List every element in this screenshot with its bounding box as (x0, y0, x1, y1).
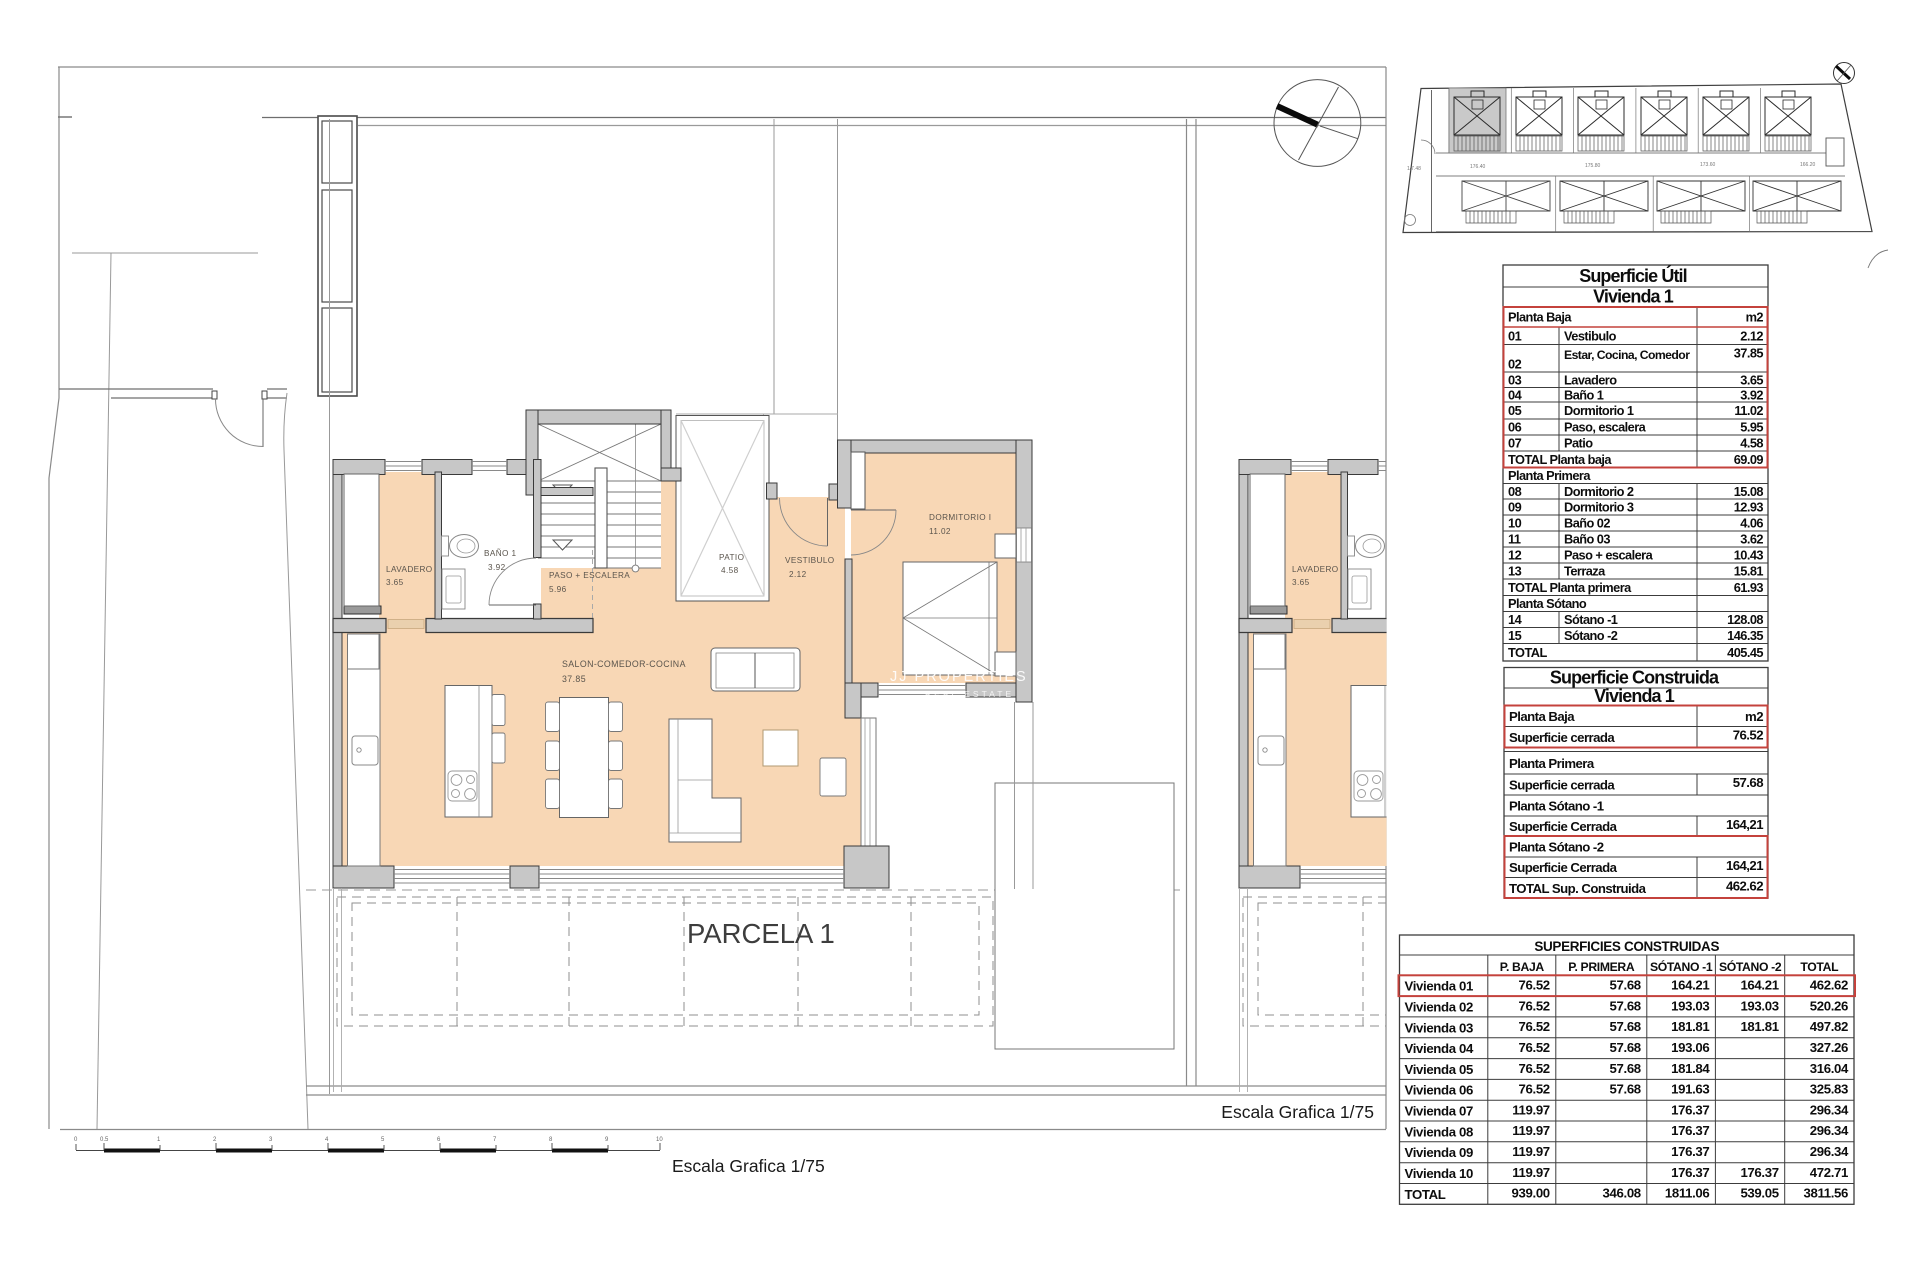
svg-text:76.52: 76.52 (1519, 1019, 1550, 1034)
svg-text:Paso + escalera: Paso + escalera (1564, 548, 1654, 563)
svg-text:04: 04 (1508, 387, 1523, 402)
svg-text:10.43: 10.43 (1734, 548, 1764, 563)
svg-text:164,21: 164,21 (1726, 817, 1763, 832)
svg-text:Dormitorio 1: Dormitorio 1 (1564, 403, 1634, 418)
svg-text:11: 11 (1508, 532, 1521, 547)
svg-text:2: 2 (213, 1137, 217, 1143)
svg-text:Vivienda 05: Vivienda 05 (1405, 1062, 1473, 1077)
svg-text:6: 6 (437, 1137, 441, 1143)
svg-text:4: 4 (325, 1137, 329, 1143)
svg-text:Vivienda 10: Vivienda 10 (1405, 1166, 1473, 1181)
svg-text:Sótano -2: Sótano -2 (1564, 628, 1618, 643)
svg-text:3811.56: 3811.56 (1804, 1186, 1849, 1201)
svg-text:1/7.48: 1/7.48 (1407, 166, 1421, 172)
svg-text:REAL ESTATE: REAL ESTATE (925, 689, 1014, 699)
svg-text:520.26: 520.26 (1810, 998, 1848, 1013)
svg-text:TOTAL: TOTAL (1405, 1187, 1446, 1202)
svg-text:76.52: 76.52 (1519, 1040, 1550, 1055)
svg-text:m2: m2 (1745, 709, 1763, 724)
svg-text:119.97: 119.97 (1512, 1165, 1550, 1180)
svg-text:939.00: 939.00 (1512, 1186, 1550, 1201)
svg-text:0: 0 (74, 1137, 78, 1143)
svg-text:10: 10 (656, 1137, 663, 1143)
svg-text:Baño 02: Baño 02 (1564, 516, 1610, 531)
svg-text:Patio: Patio (1564, 436, 1593, 451)
svg-text:3.92: 3.92 (1740, 387, 1763, 402)
svg-text:Estar, Cocina, Comedor: Estar, Cocina, Comedor (1564, 348, 1690, 362)
svg-text:176.37: 176.37 (1740, 1165, 1778, 1180)
svg-text:3: 3 (269, 1137, 273, 1143)
svg-text:Superficie cerrada: Superficie cerrada (1509, 730, 1615, 745)
svg-text:193.03: 193.03 (1740, 998, 1778, 1013)
svg-text:PARCELA 1: PARCELA 1 (687, 918, 835, 949)
svg-text:Dormitorio 2: Dormitorio 2 (1564, 484, 1634, 499)
svg-text:PASO + ESCALERA: PASO + ESCALERA (549, 571, 630, 580)
svg-text:164.21: 164.21 (1740, 978, 1778, 993)
svg-text:Vivienda 1: Vivienda 1 (1594, 686, 1675, 706)
svg-text:Escala Grafica 1/75: Escala Grafica 1/75 (672, 1156, 825, 1176)
svg-text:76.52: 76.52 (1519, 1082, 1550, 1097)
svg-text:176.37: 176.37 (1671, 1123, 1709, 1138)
svg-text:76.52: 76.52 (1519, 978, 1550, 993)
svg-text:4.06: 4.06 (1740, 516, 1763, 531)
svg-text:296.34: 296.34 (1810, 1102, 1849, 1117)
svg-text:LAVADERO: LAVADERO (386, 565, 433, 574)
svg-text:Vivienda 07: Vivienda 07 (1405, 1104, 1473, 1119)
svg-text:2.12: 2.12 (1740, 328, 1763, 343)
svg-text:181.84: 181.84 (1671, 1061, 1710, 1076)
svg-text:57.68: 57.68 (1610, 978, 1641, 993)
svg-text:TOTAL Planta primera: TOTAL Planta primera (1508, 580, 1632, 595)
svg-text:07: 07 (1508, 436, 1522, 451)
svg-text:Vivienda 01: Vivienda 01 (1405, 979, 1473, 994)
svg-text:472.71: 472.71 (1810, 1165, 1848, 1180)
svg-text:405.45: 405.45 (1727, 645, 1763, 660)
svg-text:09: 09 (1508, 500, 1522, 515)
svg-text:176.37: 176.37 (1671, 1102, 1709, 1117)
svg-text:5.96: 5.96 (549, 585, 567, 594)
svg-text:05: 05 (1508, 403, 1522, 418)
svg-text:9: 9 (605, 1137, 609, 1143)
svg-text:BAÑO 1: BAÑO 1 (484, 548, 516, 558)
svg-text:TOTAL Sup. Construida: TOTAL Sup. Construida (1509, 881, 1647, 896)
svg-text:Planta Baja: Planta Baja (1508, 310, 1572, 325)
svg-text:146.35: 146.35 (1727, 628, 1763, 643)
svg-text:76.52: 76.52 (1519, 998, 1550, 1013)
svg-text:06: 06 (1508, 420, 1522, 435)
svg-text:57.68: 57.68 (1610, 1019, 1641, 1034)
svg-text:3.92: 3.92 (488, 563, 506, 572)
svg-text:0.5: 0.5 (100, 1137, 109, 1143)
svg-text:57.68: 57.68 (1610, 1061, 1641, 1076)
svg-text:Lavadero: Lavadero (1564, 372, 1617, 387)
svg-text:TOTAL: TOTAL (1508, 645, 1547, 660)
svg-text:08: 08 (1508, 484, 1522, 499)
svg-text:11.02: 11.02 (929, 527, 951, 536)
svg-text:01: 01 (1508, 328, 1522, 343)
svg-text:164,21: 164,21 (1726, 858, 1763, 873)
svg-text:296.34: 296.34 (1810, 1123, 1849, 1138)
svg-text:37.85: 37.85 (1734, 346, 1764, 361)
svg-text:Vivienda 02: Vivienda 02 (1405, 999, 1473, 1014)
svg-text:Planta Baja: Planta Baja (1509, 709, 1575, 724)
svg-text:4.58: 4.58 (721, 566, 739, 575)
svg-text:Planta Primera: Planta Primera (1509, 756, 1595, 771)
svg-text:Vivienda 04: Vivienda 04 (1405, 1041, 1474, 1056)
svg-text:37.85: 37.85 (562, 674, 586, 684)
svg-text:Superficie Cerrada: Superficie Cerrada (1509, 819, 1618, 834)
svg-text:76.52: 76.52 (1733, 728, 1763, 743)
svg-text:57.68: 57.68 (1610, 1082, 1641, 1097)
svg-text:DORMITORIO I: DORMITORIO I (929, 513, 991, 522)
svg-text:176.37: 176.37 (1671, 1144, 1709, 1159)
svg-text:02: 02 (1508, 357, 1522, 372)
svg-text:Sótano -1: Sótano -1 (1564, 612, 1618, 627)
svg-text:181.81: 181.81 (1740, 1019, 1778, 1034)
svg-text:119.97: 119.97 (1512, 1102, 1550, 1117)
svg-text:57.68: 57.68 (1610, 998, 1641, 1013)
svg-text:57.68: 57.68 (1733, 775, 1763, 790)
svg-text:2.12: 2.12 (789, 570, 807, 579)
svg-text:296.34: 296.34 (1810, 1144, 1849, 1159)
svg-text:Vivienda 08: Vivienda 08 (1405, 1124, 1473, 1139)
svg-text:1811.06: 1811.06 (1665, 1186, 1710, 1201)
svg-text:Vivienda 09: Vivienda 09 (1405, 1145, 1473, 1160)
svg-text:316.04: 316.04 (1810, 1061, 1849, 1076)
svg-text:497.82: 497.82 (1810, 1019, 1848, 1034)
svg-text:176.37: 176.37 (1671, 1165, 1709, 1180)
svg-text:119.97: 119.97 (1512, 1123, 1550, 1138)
svg-text:8: 8 (549, 1137, 553, 1143)
svg-text:SÓTANO -2: SÓTANO -2 (1719, 959, 1782, 974)
svg-text:12: 12 (1508, 548, 1522, 563)
svg-text:TOTAL Planta baja: TOTAL Planta baja (1508, 452, 1612, 467)
svg-text:539.05: 539.05 (1740, 1186, 1778, 1201)
svg-text:76.52: 76.52 (1519, 1061, 1550, 1076)
svg-text:7: 7 (493, 1137, 497, 1143)
svg-text:176.40: 176.40 (1470, 164, 1486, 170)
svg-text:327.26: 327.26 (1810, 1040, 1848, 1055)
svg-text:191.63: 191.63 (1671, 1082, 1709, 1097)
svg-text:1: 1 (157, 1137, 161, 1143)
svg-text:Vivienda 1: Vivienda 1 (1593, 287, 1674, 307)
svg-text:Planta Sótano: Planta Sótano (1508, 596, 1587, 611)
svg-text:4.58: 4.58 (1740, 436, 1763, 451)
svg-text:13: 13 (1508, 564, 1522, 579)
svg-text:Superficie Construida: Superficie Construida (1550, 668, 1720, 688)
svg-text:61.93: 61.93 (1734, 580, 1764, 595)
svg-text:Vivienda 03: Vivienda 03 (1405, 1020, 1473, 1035)
svg-text:3.65: 3.65 (1740, 372, 1763, 387)
svg-text:181.81: 181.81 (1671, 1019, 1709, 1034)
svg-text:15.81: 15.81 (1734, 564, 1764, 579)
svg-text:175.80: 175.80 (1585, 163, 1601, 169)
svg-text:462.62: 462.62 (1810, 978, 1848, 993)
svg-text:TOTAL: TOTAL (1800, 960, 1839, 974)
svg-text:164.21: 164.21 (1671, 978, 1709, 993)
svg-text:11.02: 11.02 (1734, 403, 1763, 418)
svg-text:3.62: 3.62 (1740, 532, 1763, 547)
svg-text:57.68: 57.68 (1610, 1040, 1641, 1055)
svg-text:346.08: 346.08 (1603, 1186, 1641, 1201)
svg-text:P. BAJA: P. BAJA (1500, 960, 1545, 974)
svg-text:15.08: 15.08 (1734, 484, 1764, 499)
svg-text:Paso, escalera: Paso, escalera (1564, 420, 1647, 435)
svg-text:462.62: 462.62 (1726, 879, 1763, 894)
svg-text:15: 15 (1508, 628, 1522, 643)
svg-text:5.95: 5.95 (1740, 420, 1763, 435)
svg-text:173.60: 173.60 (1700, 162, 1716, 168)
svg-text:Vestibulo: Vestibulo (1564, 328, 1617, 343)
svg-text:12.93: 12.93 (1734, 500, 1764, 515)
svg-text:128.08: 128.08 (1727, 612, 1763, 627)
svg-text:PATIO: PATIO (719, 553, 744, 562)
svg-text:SUPERFICIES CONSTRUIDAS: SUPERFICIES CONSTRUIDAS (1534, 939, 1719, 954)
svg-text:166.20: 166.20 (1800, 162, 1816, 168)
svg-text:JJ PROPERTIES: JJ PROPERTIES (890, 669, 1028, 685)
svg-text:SALON-COMEDOR-COCINA: SALON-COMEDOR-COCINA (562, 659, 686, 669)
svg-text:69.09: 69.09 (1734, 452, 1764, 467)
svg-text:Baño 03: Baño 03 (1564, 532, 1610, 547)
svg-text:119.97: 119.97 (1512, 1144, 1550, 1159)
svg-text:193.03: 193.03 (1671, 998, 1709, 1013)
svg-text:Planta Sótano -2: Planta Sótano -2 (1509, 840, 1604, 855)
svg-text:10: 10 (1508, 516, 1522, 531)
svg-text:Planta Sótano -1: Planta Sótano -1 (1509, 799, 1604, 814)
svg-text:3.65: 3.65 (386, 578, 404, 587)
svg-text:SÓTANO -1: SÓTANO -1 (1650, 959, 1713, 974)
svg-text:14: 14 (1508, 612, 1523, 627)
svg-text:5: 5 (381, 1137, 385, 1143)
svg-text:Escala Grafica 1/75: Escala Grafica 1/75 (1221, 1102, 1374, 1122)
svg-text:325.83: 325.83 (1810, 1082, 1848, 1097)
svg-text:Superficie cerrada: Superficie cerrada (1509, 778, 1615, 793)
svg-text:193.06: 193.06 (1671, 1040, 1709, 1055)
svg-text:Superficie Cerrada: Superficie Cerrada (1509, 860, 1618, 875)
svg-text:Planta Primera: Planta Primera (1508, 468, 1591, 483)
svg-text:Terraza: Terraza (1564, 564, 1606, 579)
svg-text:VESTIBULO: VESTIBULO (785, 556, 835, 565)
svg-text:03: 03 (1508, 372, 1522, 387)
svg-text:Superficie Útil: Superficie Útil (1579, 265, 1687, 286)
svg-text:Baño 1: Baño 1 (1564, 387, 1604, 402)
svg-text:Vivienda 06: Vivienda 06 (1405, 1083, 1473, 1098)
svg-text:Dormitorio 3: Dormitorio 3 (1564, 500, 1634, 515)
svg-text:m2: m2 (1746, 310, 1764, 325)
svg-text:P. PRIMERA: P. PRIMERA (1568, 960, 1635, 974)
